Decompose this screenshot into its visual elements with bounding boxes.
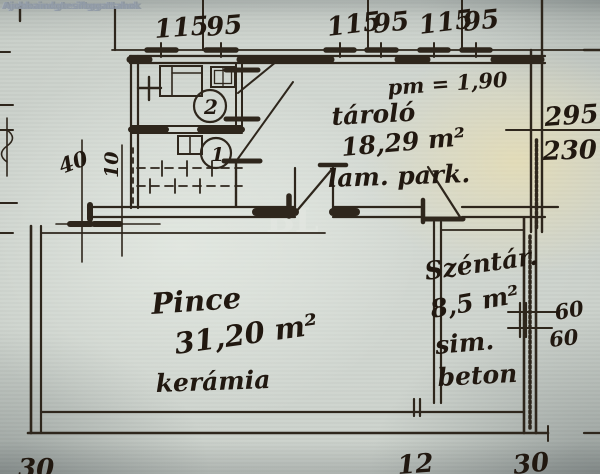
dim-40: 40 xyxy=(55,145,91,179)
fixture-1-number: 1 xyxy=(211,144,224,166)
tarolo-floor: lam. park. xyxy=(327,159,470,193)
parapet-note: pm = 1,90 xyxy=(387,67,509,100)
watermark-text: Ajobbaindgtesiftggattahok xyxy=(2,1,139,12)
dim-60-a: 60 xyxy=(553,295,587,325)
top-dimension-labels: 115 95 115 95 115 95 xyxy=(153,4,500,45)
dim-95-3: 95 xyxy=(462,4,501,38)
floor-plan-photo: Ajobbaindgtesiftggattahok BL xyxy=(0,0,600,474)
szentar-floor-2: beton xyxy=(437,359,518,392)
pince-floor: kerámia xyxy=(155,365,271,398)
dim-bottom-left: 30 xyxy=(18,454,54,474)
dim-230: 230 xyxy=(541,135,597,167)
pince-name: Pince xyxy=(149,281,242,321)
dim-10: 10 xyxy=(101,152,123,178)
dim-95-1: 95 xyxy=(205,10,244,43)
dim-60-b: 60 xyxy=(548,324,580,352)
tarolo-name: tároló xyxy=(331,98,416,131)
dim-bottom-right: 30 xyxy=(512,447,551,474)
fixture-2-number: 2 xyxy=(203,95,218,119)
szentar-floor-1: sim. xyxy=(433,326,495,360)
dim-295: 295 xyxy=(542,99,599,133)
dim-95-2: 95 xyxy=(372,6,411,40)
dim-bottom-mid: 12 xyxy=(396,449,434,474)
floor-plan-drawing: BL xyxy=(0,0,600,474)
dim-115-1: 115 xyxy=(153,11,209,45)
dashed-stair-lines xyxy=(133,148,242,204)
